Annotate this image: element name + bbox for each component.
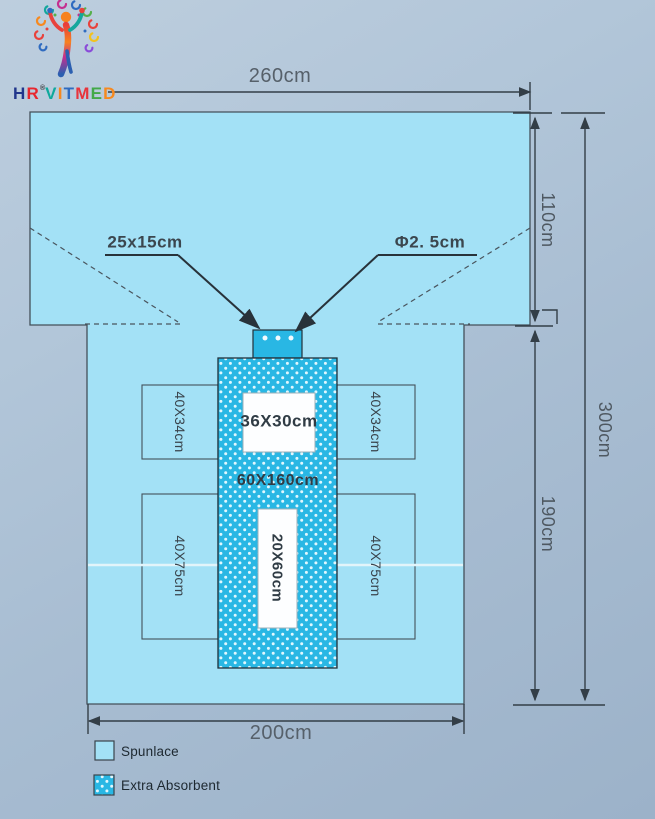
dim-200cm-label: 200cm — [250, 723, 313, 743]
step-mark — [542, 310, 557, 324]
brand-logo-icon — [35, 0, 98, 74]
legend-absorbent-swatch — [94, 775, 114, 795]
legend-spunlace-swatch — [95, 741, 114, 760]
fenestration-top-label: 36X30cm — [240, 413, 317, 430]
drape-diagram — [0, 0, 655, 819]
dim-300cm-label: 300cm — [596, 402, 614, 459]
neck-tab — [253, 330, 302, 358]
side-pad-lower-left-label: 40X75cm — [173, 535, 187, 596]
fenestration-bottom-label: 20X60cm — [270, 534, 285, 603]
dim-190cm-label: 190cm — [539, 496, 557, 553]
surgical-drape-spec-sheet: HR®VITMED 260cm 110cm 300cm 190cm 200cm … — [0, 0, 655, 819]
dim-110cm-label: 110cm — [539, 192, 557, 247]
legend-absorbent-label: Extra Absorbent — [121, 779, 220, 793]
brand-name: HR®VITMED — [13, 84, 117, 104]
side-pad-upper-right-label: 40X34cm — [369, 391, 383, 452]
callout-hole-diameter-label: Φ2. 5cm — [395, 234, 465, 251]
dim-260cm-label: 260cm — [249, 66, 312, 86]
legend-spunlace-label: Spunlace — [121, 745, 179, 759]
callout-25x15-label: 25x15cm — [107, 234, 182, 251]
side-pad-lower-right-label: 40X75cm — [369, 535, 383, 596]
side-pad-upper-left-label: 40X34cm — [173, 391, 187, 452]
absorbent-zone-label: 60X160cm — [237, 473, 319, 489]
